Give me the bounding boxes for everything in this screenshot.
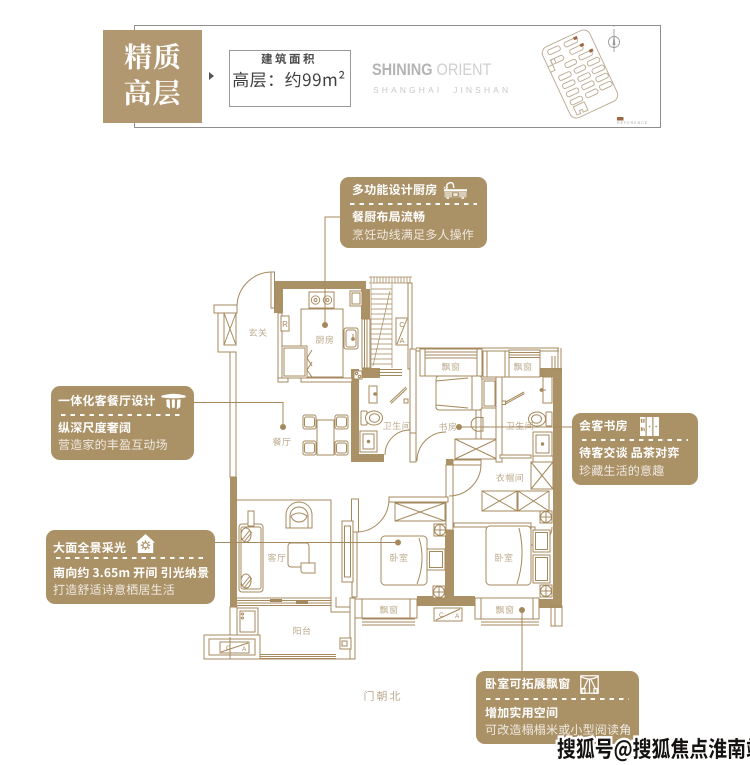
svg-text:R: R <box>282 320 288 329</box>
svg-text:飘窗: 飘窗 <box>441 360 460 373</box>
svg-text:飘窗: 飘窗 <box>379 603 398 616</box>
svg-text:A: A <box>455 613 460 620</box>
svg-text:卧室: 卧室 <box>389 551 408 564</box>
svg-text:飘窗: 飘窗 <box>495 603 514 616</box>
svg-text:C: C <box>399 320 405 329</box>
svg-text:A: A <box>399 336 404 345</box>
svg-text:厨房: 厨房 <box>315 333 334 346</box>
svg-text:门朝北: 门朝北 <box>364 688 403 704</box>
svg-text:客厅: 客厅 <box>267 551 286 564</box>
svg-text:卫生间: 卫生间 <box>506 419 535 432</box>
svg-text:C: C <box>439 612 444 619</box>
svg-text:阳台: 阳台 <box>292 624 311 637</box>
svg-text:A: A <box>242 646 247 653</box>
svg-text:衣帽间: 衣帽间 <box>496 471 525 484</box>
svg-text:书房: 书房 <box>438 420 457 433</box>
svg-text:玄关: 玄关 <box>248 326 267 339</box>
svg-text:飘窗: 飘窗 <box>513 360 532 373</box>
svg-text:餐厅: 餐厅 <box>272 435 291 448</box>
svg-text:卧室: 卧室 <box>494 551 513 564</box>
